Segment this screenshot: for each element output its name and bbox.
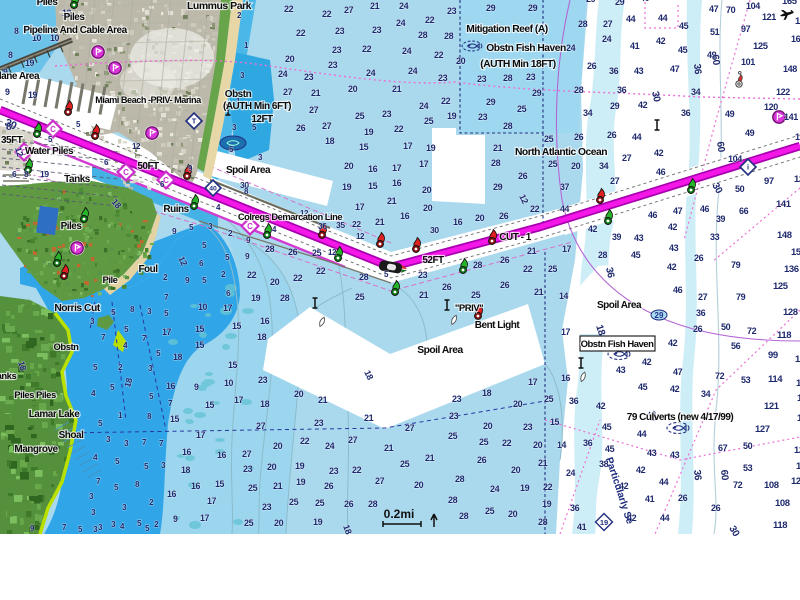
svg-text:19: 19 (426, 143, 436, 153)
svg-text:26: 26 (587, 61, 597, 71)
svg-text:23: 23 (477, 74, 487, 84)
svg-text:117: 117 (795, 16, 800, 27)
svg-text:12: 12 (356, 232, 365, 241)
svg-text:29: 29 (486, 97, 496, 107)
svg-text:27: 27 (698, 292, 708, 302)
svg-text:22: 22 (394, 124, 404, 134)
svg-text:(AUTH Min 18FT): (AUTH Min 18FT) (480, 59, 556, 70)
svg-text:20: 20 (285, 54, 295, 64)
svg-text:CUT - 1: CUT - 1 (499, 232, 531, 243)
svg-text:28: 28 (574, 85, 584, 95)
svg-text:Piles: Piles (37, 0, 59, 8)
svg-text:36: 36 (570, 503, 580, 513)
svg-text:79: 79 (731, 260, 741, 270)
svg-text:72: 72 (715, 371, 725, 381)
svg-text:20: 20 (273, 441, 283, 451)
svg-text:34: 34 (691, 87, 701, 97)
svg-text:23: 23 (372, 25, 382, 35)
svg-text:23: 23 (382, 109, 392, 119)
svg-text:33: 33 (710, 232, 720, 242)
svg-text:25: 25 (479, 437, 489, 447)
svg-text:25: 25 (244, 518, 254, 528)
svg-text:"PRIV": "PRIV" (455, 303, 483, 314)
svg-text:29: 29 (610, 101, 620, 111)
svg-text:27: 27 (322, 121, 332, 131)
svg-text:22: 22 (523, 264, 533, 274)
svg-text:Ruins: Ruins (163, 204, 189, 215)
svg-text:27: 27 (405, 423, 415, 433)
svg-text:120: 120 (764, 102, 778, 112)
svg-text:19: 19 (313, 517, 323, 527)
svg-text:16: 16 (561, 373, 570, 383)
svg-text:28: 28 (503, 121, 513, 131)
svg-text:28: 28 (368, 499, 378, 509)
svg-text:17: 17 (207, 496, 216, 506)
svg-text:20: 20 (533, 440, 543, 450)
svg-text:28: 28 (455, 474, 465, 484)
svg-text:44: 44 (637, 429, 647, 439)
svg-text:22: 22 (300, 436, 310, 446)
svg-text:21: 21 (419, 290, 429, 300)
svg-text:23: 23 (304, 72, 314, 82)
svg-text:28: 28 (503, 73, 513, 83)
svg-text:136: 136 (784, 264, 799, 275)
svg-text:16: 16 (392, 178, 402, 188)
svg-text:108: 108 (775, 498, 790, 509)
svg-text:T: T (192, 117, 197, 126)
svg-text:29: 29 (615, 0, 625, 7)
svg-text:20: 20 (483, 421, 493, 431)
svg-text:29: 29 (655, 311, 664, 320)
svg-text:42: 42 (656, 36, 666, 46)
svg-text:42: 42 (667, 262, 677, 272)
svg-text:17: 17 (419, 159, 429, 169)
svg-text:39: 39 (612, 232, 621, 242)
svg-text:36: 36 (617, 85, 627, 95)
svg-text:17: 17 (392, 163, 402, 173)
svg-text:108: 108 (764, 480, 779, 491)
svg-text:28: 28 (280, 293, 290, 303)
svg-text:25: 25 (548, 159, 558, 169)
svg-text:20: 20 (511, 465, 521, 475)
svg-text:23: 23 (335, 26, 345, 36)
svg-text:51: 51 (710, 27, 720, 37)
svg-text:21: 21 (493, 143, 503, 153)
svg-text:43: 43 (669, 243, 679, 253)
svg-text:36: 36 (318, 221, 327, 231)
svg-text:49: 49 (745, 128, 755, 138)
svg-text:18: 18 (173, 352, 182, 362)
svg-text:23: 23 (329, 466, 339, 476)
svg-text:Spoil Area: Spoil Area (226, 165, 271, 176)
svg-text:36: 36 (691, 469, 703, 481)
svg-text:122: 122 (791, 476, 800, 487)
svg-text:56: 56 (731, 341, 741, 351)
svg-text:Obstn: Obstn (225, 89, 252, 100)
svg-text:22: 22 (502, 438, 512, 448)
svg-text:23: 23 (449, 411, 459, 421)
svg-text:16: 16 (191, 481, 200, 491)
svg-text:36: 36 (583, 438, 593, 448)
svg-text:46: 46 (656, 167, 666, 177)
svg-text:8: 8 (8, 50, 13, 60)
svg-text:20: 20 (456, 56, 466, 66)
svg-text:15: 15 (368, 181, 378, 191)
svg-text:15: 15 (215, 479, 224, 489)
svg-text:20: 20 (513, 399, 523, 409)
svg-text:26: 26 (344, 499, 354, 509)
svg-text:22: 22 (434, 50, 444, 60)
svg-text:27: 27 (610, 176, 620, 186)
svg-text:19: 19 (520, 483, 530, 493)
svg-text:28: 28 (448, 495, 458, 505)
svg-text:45: 45 (631, 250, 641, 260)
svg-text:22: 22 (322, 9, 332, 19)
svg-text:9: 9 (173, 514, 178, 524)
svg-text:53: 53 (741, 375, 751, 385)
svg-text:19: 19 (364, 127, 374, 137)
svg-text:16: 16 (182, 447, 191, 457)
svg-text:C: C (50, 125, 56, 134)
svg-text:99: 99 (768, 350, 778, 361)
svg-text:26: 26 (711, 503, 721, 513)
svg-text:21: 21 (375, 217, 385, 227)
svg-text:104: 104 (746, 1, 760, 11)
svg-text:47: 47 (709, 4, 719, 14)
svg-text:Bent Light: Bent Light (475, 320, 521, 331)
svg-text:24: 24 (408, 66, 418, 76)
svg-text:24: 24 (602, 34, 612, 44)
svg-text:34: 34 (583, 108, 593, 118)
svg-text:72: 72 (747, 326, 757, 336)
svg-text:12: 12 (328, 248, 337, 257)
svg-text:21: 21 (273, 481, 283, 491)
svg-text:17: 17 (562, 244, 571, 254)
svg-text:Piles: Piles (61, 221, 83, 232)
svg-text:25: 25 (548, 264, 557, 274)
svg-text:46: 46 (648, 210, 657, 220)
svg-text:24: 24 (490, 484, 500, 494)
svg-text:16: 16 (453, 217, 463, 227)
svg-text:22: 22 (543, 482, 553, 492)
svg-text:19: 19 (28, 90, 37, 100)
svg-text:125: 125 (773, 281, 789, 292)
svg-text:43: 43 (616, 365, 626, 375)
svg-text:15: 15 (550, 417, 559, 427)
svg-text:15: 15 (359, 142, 369, 152)
svg-text:24: 24 (278, 69, 288, 79)
svg-text:128: 128 (783, 307, 798, 318)
svg-text:26: 26 (500, 255, 510, 265)
svg-text:28: 28 (418, 30, 428, 40)
svg-text:41: 41 (645, 494, 655, 504)
svg-text:20: 20 (294, 389, 304, 399)
svg-text:Mangrove: Mangrove (14, 444, 58, 455)
svg-text:27: 27 (283, 87, 293, 97)
svg-text:26: 26 (296, 123, 306, 133)
svg-text:20: 20 (270, 277, 280, 287)
svg-text:118: 118 (777, 330, 791, 341)
svg-text:20: 20 (414, 480, 424, 490)
svg-text:20: 20 (422, 185, 432, 195)
svg-text:25: 25 (424, 116, 434, 126)
svg-text:30: 30 (430, 225, 439, 235)
svg-text:Lummus Park: Lummus Park (187, 0, 252, 12)
svg-text:25: 25 (517, 104, 527, 114)
svg-text:44: 44 (626, 14, 636, 24)
svg-text:26: 26 (607, 130, 617, 140)
svg-text:127: 127 (796, 378, 800, 389)
svg-text:24: 24 (325, 441, 335, 451)
svg-text:27: 27 (348, 435, 358, 445)
svg-text:27: 27 (309, 105, 319, 115)
svg-text:42: 42 (668, 338, 678, 348)
svg-text:21: 21 (527, 246, 537, 256)
svg-text:24: 24 (419, 101, 429, 111)
svg-text:26: 26 (518, 171, 528, 181)
svg-text:19: 19 (447, 111, 457, 121)
svg-text:27: 27 (242, 449, 252, 459)
svg-text:23: 23 (328, 60, 338, 70)
svg-text:101: 101 (741, 57, 755, 67)
svg-text:45: 45 (678, 45, 688, 55)
svg-text:23: 23 (262, 502, 272, 512)
svg-text:24: 24 (566, 43, 576, 53)
svg-text:47: 47 (670, 64, 680, 74)
svg-text:15: 15 (205, 400, 214, 410)
svg-text:17: 17 (403, 141, 413, 151)
svg-text:19: 19 (342, 182, 352, 192)
svg-text:29: 29 (532, 88, 542, 98)
svg-text:26: 26 (499, 211, 509, 221)
svg-text:36: 36 (696, 308, 706, 318)
svg-text:45: 45 (638, 382, 648, 392)
svg-text:23: 23 (418, 270, 428, 280)
svg-text:0.2mi: 0.2mi (384, 507, 415, 521)
svg-text:42: 42 (596, 401, 606, 411)
svg-text:70: 70 (726, 5, 736, 15)
svg-text:44: 44 (660, 513, 670, 523)
svg-text:22: 22 (425, 15, 435, 25)
svg-text:26: 26 (324, 481, 334, 491)
svg-text:21: 21 (392, 84, 402, 94)
svg-text:24: 24 (399, 1, 409, 11)
svg-text:21: 21 (311, 88, 321, 98)
svg-text:21: 21 (384, 443, 394, 453)
svg-text:25: 25 (544, 134, 554, 144)
svg-text:17: 17 (528, 377, 538, 387)
svg-text:23: 23 (243, 464, 253, 474)
svg-text:50: 50 (721, 322, 731, 332)
svg-text:North Atlantic Ocean: North Atlantic Ocean (515, 147, 607, 158)
svg-text:23: 23 (526, 72, 536, 82)
svg-text:50: 50 (735, 184, 745, 194)
svg-text:79 Culverts (new 4/17/99): 79 Culverts (new 4/17/99) (627, 412, 734, 423)
svg-text:24: 24 (366, 68, 376, 78)
svg-text:36: 36 (609, 66, 619, 76)
svg-text:23: 23 (523, 422, 533, 432)
svg-text:Spoil Area: Spoil Area (417, 345, 463, 356)
svg-text:10: 10 (224, 378, 233, 388)
svg-text:67: 67 (718, 443, 728, 453)
svg-text:25: 25 (355, 111, 365, 121)
svg-text:27: 27 (603, 19, 613, 29)
svg-text:Obstn: Obstn (54, 342, 80, 353)
svg-text:21: 21 (370, 1, 380, 11)
svg-text:28: 28 (538, 517, 548, 527)
svg-text:26: 26 (693, 324, 703, 334)
svg-text:47: 47 (673, 206, 683, 216)
svg-text:8: 8 (14, 26, 19, 36)
svg-text:Pile: Pile (103, 275, 118, 286)
svg-text:28: 28 (265, 244, 275, 254)
svg-text:23: 23 (452, 394, 462, 404)
svg-text:121: 121 (794, 445, 800, 456)
svg-text:24: 24 (566, 468, 575, 478)
svg-text:22: 22 (284, 4, 294, 14)
svg-text:19: 19 (295, 461, 305, 471)
svg-text:22: 22 (293, 273, 303, 283)
svg-text:9: 9 (194, 382, 199, 392)
svg-text:23: 23 (314, 418, 324, 428)
svg-text:79: 79 (736, 292, 746, 302)
svg-text:46: 46 (700, 204, 709, 214)
svg-text:17: 17 (162, 327, 171, 337)
svg-text:24: 24 (396, 18, 406, 28)
svg-text:28: 28 (598, 250, 607, 260)
svg-text:42: 42 (654, 148, 664, 158)
svg-text:50: 50 (743, 441, 753, 451)
svg-text:20: 20 (423, 203, 433, 213)
svg-text:28: 28 (491, 158, 501, 168)
svg-text:Colregs Demarcation Line: Colregs Demarcation Line (238, 211, 342, 222)
svg-text:19: 19 (296, 477, 306, 487)
svg-text:Foul: Foul (138, 264, 158, 275)
svg-text:97: 97 (764, 176, 774, 187)
svg-text:44: 44 (632, 132, 642, 142)
svg-text:43: 43 (647, 448, 657, 458)
svg-text:21: 21 (364, 413, 374, 423)
svg-text:18: 18 (260, 399, 270, 409)
svg-text:17: 17 (234, 395, 243, 405)
svg-text:24: 24 (402, 46, 412, 56)
svg-text:28: 28 (459, 511, 469, 521)
svg-text:15: 15 (228, 360, 237, 370)
svg-text:20: 20 (508, 509, 518, 519)
svg-text:125: 125 (753, 41, 769, 52)
svg-text:29: 29 (528, 3, 538, 13)
svg-text:60: 60 (718, 469, 730, 481)
svg-text:22: 22 (441, 96, 451, 106)
svg-text:23: 23 (478, 112, 488, 122)
svg-text:28: 28 (578, 19, 588, 29)
svg-text:49: 49 (725, 109, 735, 119)
svg-text:25: 25 (485, 506, 495, 516)
svg-text:114: 114 (768, 374, 783, 385)
svg-text:50FT: 50FT (137, 161, 159, 172)
svg-text:Piles: Piles (64, 12, 86, 23)
svg-text:45: 45 (602, 422, 612, 432)
svg-text:152: 152 (795, 132, 800, 142)
svg-text:18: 18 (482, 388, 492, 398)
svg-text:27: 27 (622, 153, 632, 163)
svg-text:16: 16 (217, 450, 226, 460)
svg-text:Pipeline And Cable Area: Pipeline And Cable Area (23, 25, 127, 36)
svg-text:15: 15 (232, 321, 241, 331)
svg-text:16: 16 (260, 316, 270, 326)
svg-text:12FT: 12FT (251, 114, 273, 125)
svg-text:Piles Piles: Piles Piles (14, 390, 56, 401)
svg-text:118: 118 (773, 520, 787, 531)
svg-text:Tanks: Tanks (0, 371, 16, 382)
svg-text:19: 19 (600, 518, 608, 527)
svg-text:42: 42 (588, 224, 597, 234)
svg-text:44: 44 (658, 13, 668, 23)
svg-text:27: 27 (375, 476, 385, 486)
svg-text:122: 122 (795, 354, 800, 365)
svg-text:41: 41 (630, 41, 640, 51)
svg-text:20: 20 (267, 462, 277, 472)
svg-text:6: 6 (12, 169, 17, 179)
svg-text:43: 43 (670, 450, 680, 460)
svg-text:29: 29 (586, 0, 596, 4)
svg-text:25: 25 (400, 459, 410, 469)
svg-text:Seaplane Area: Seaplane Area (0, 71, 40, 82)
svg-text:42: 42 (636, 465, 646, 475)
svg-text:66: 66 (739, 206, 749, 216)
svg-text:72: 72 (733, 480, 743, 490)
svg-text:19: 19 (542, 499, 552, 509)
svg-text:53: 53 (743, 463, 753, 473)
svg-text:35FT: 35FT (1, 135, 23, 146)
svg-text:25: 25 (248, 483, 258, 493)
svg-text:44: 44 (560, 204, 569, 214)
svg-text:17: 17 (200, 513, 209, 523)
svg-text:17: 17 (196, 430, 205, 440)
svg-text:148: 148 (783, 64, 797, 74)
svg-text:9: 9 (5, 87, 10, 97)
svg-text:19: 19 (251, 293, 261, 303)
svg-text:14: 14 (557, 440, 566, 450)
svg-text:25: 25 (355, 292, 365, 302)
svg-text:37: 37 (560, 182, 569, 192)
svg-text:21: 21 (318, 395, 328, 405)
svg-text:25: 25 (471, 290, 481, 300)
svg-text:121: 121 (764, 401, 780, 412)
svg-text:22: 22 (530, 204, 540, 214)
svg-text:127: 127 (755, 424, 770, 435)
svg-text:22: 22 (316, 266, 326, 276)
svg-text:17: 17 (223, 303, 232, 313)
svg-text:23: 23 (332, 45, 342, 55)
svg-text:Spoil Area: Spoil Area (597, 300, 642, 311)
svg-text:Obstn Fish Haven: Obstn Fish Haven (486, 43, 566, 54)
svg-text:i: i (747, 163, 749, 172)
svg-text:12: 12 (132, 142, 141, 151)
svg-text:29: 29 (486, 3, 496, 13)
svg-text:25: 25 (448, 431, 458, 441)
svg-text:165: 165 (791, 34, 800, 44)
svg-text:26: 26 (694, 253, 704, 263)
svg-text:97: 97 (741, 24, 751, 34)
svg-text:21: 21 (425, 453, 435, 463)
svg-text:25: 25 (315, 498, 325, 508)
svg-text:26: 26 (678, 493, 688, 503)
svg-text:104: 104 (728, 154, 742, 164)
svg-text:21: 21 (534, 287, 544, 297)
svg-text:15: 15 (195, 324, 204, 334)
svg-text:45: 45 (605, 444, 615, 454)
